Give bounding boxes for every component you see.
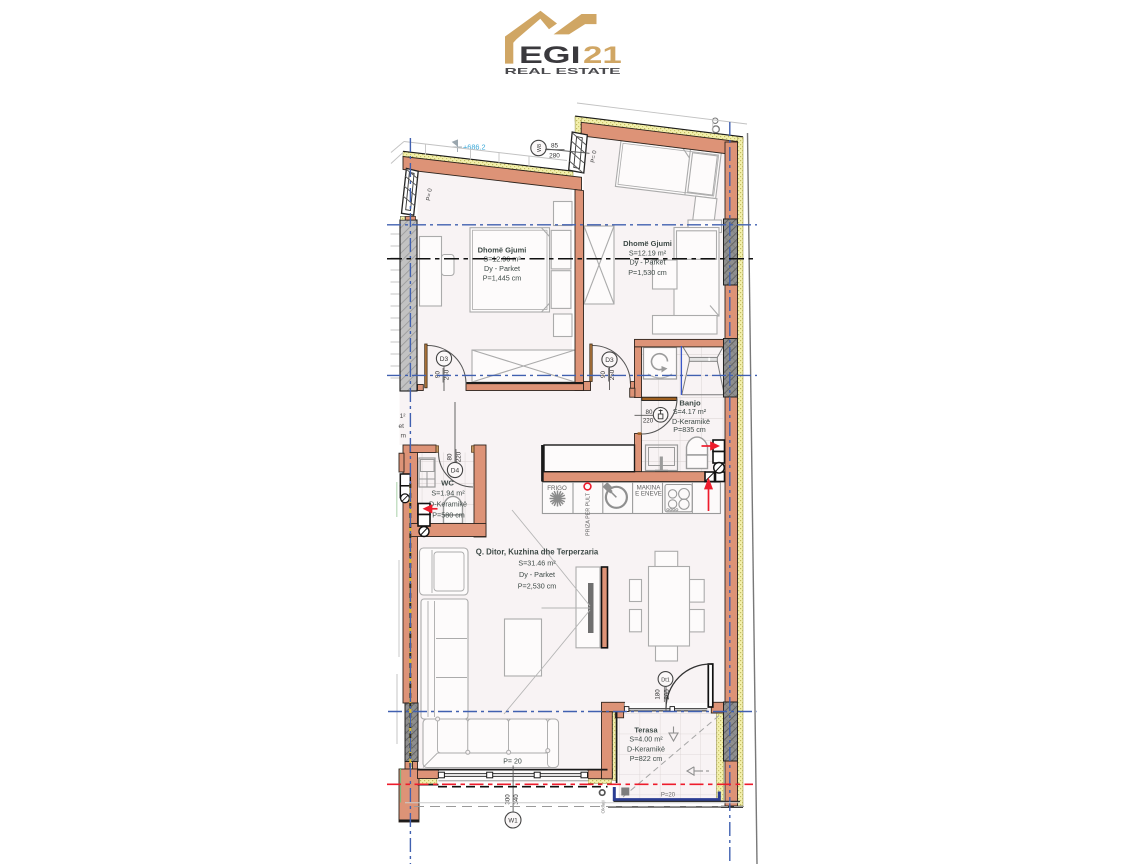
- svg-text:80: 80: [447, 453, 454, 460]
- svg-text:P=1,530 cm: P=1,530 cm: [628, 268, 667, 277]
- svg-text:m: m: [401, 433, 407, 440]
- svg-text:S=31.46 m²: S=31.46 m²: [518, 559, 556, 568]
- svg-text:P=835 cm: P=835 cm: [673, 425, 706, 434]
- svg-text:Dhomë Gjumi: Dhomë Gjumi: [478, 246, 527, 255]
- svg-text:D-Keramikë: D-Keramikë: [627, 745, 665, 754]
- svg-text:E ENEVE: E ENEVE: [635, 491, 662, 498]
- svg-text:D3: D3: [440, 356, 449, 363]
- svg-text:+686.2: +686.2: [463, 143, 486, 152]
- svg-text:P=822 cm: P=822 cm: [630, 754, 663, 763]
- svg-text:S=4.17 m²: S=4.17 m²: [673, 407, 707, 416]
- svg-text:D-Keramikë: D-Keramikë: [429, 500, 467, 509]
- svg-text:P=20: P=20: [661, 793, 676, 799]
- svg-text:D4: D4: [451, 468, 460, 475]
- svg-text:WC: WC: [441, 479, 454, 488]
- svg-text:EGI: EGI: [519, 42, 581, 69]
- svg-text:PRIZA PER PULT: PRIZA PER PULT: [586, 492, 592, 536]
- svg-text:W1: W1: [508, 818, 518, 825]
- svg-text:Dy - Parket: Dy - Parket: [519, 570, 555, 579]
- svg-text:S=4.00 m²: S=4.00 m²: [629, 735, 663, 744]
- svg-text:180: 180: [655, 689, 662, 700]
- svg-text:FRIGO: FRIGO: [547, 485, 567, 492]
- svg-text:90: 90: [600, 371, 607, 378]
- svg-text:1²: 1²: [400, 413, 407, 420]
- svg-text:220: 220: [643, 418, 654, 425]
- svg-text:D3: D3: [605, 357, 614, 364]
- svg-text:Dhomë Gjumi: Dhomë Gjumi: [623, 239, 672, 248]
- svg-text:W8: W8: [537, 144, 543, 152]
- svg-text:REAL ESTATE: REAL ESTATE: [505, 67, 622, 76]
- svg-text:21: 21: [583, 42, 622, 69]
- svg-text:Terasa: Terasa: [634, 726, 658, 735]
- svg-text:S=1.94 m²: S=1.94 m²: [431, 489, 465, 498]
- svg-text:P= 20: P= 20: [503, 759, 522, 766]
- svg-text:260: 260: [664, 689, 671, 700]
- svg-text:P=2,530 cm: P=2,530 cm: [518, 582, 557, 591]
- svg-text:S=12.19 m²: S=12.19 m²: [629, 249, 667, 258]
- svg-text:P=1,445 cm: P=1,445 cm: [483, 274, 522, 283]
- svg-text:220: 220: [456, 451, 463, 462]
- svg-text:Q. Ditor, Kuzhina dhe Terperza: Q. Ditor, Kuzhina dhe Terperzaria: [476, 548, 599, 557]
- svg-text:P=580 cm: P=580 cm: [432, 511, 465, 520]
- svg-text:90: 90: [435, 371, 442, 378]
- svg-text:Dt1: Dt1: [661, 677, 669, 683]
- svg-text:Dy - Parket: Dy - Parket: [484, 264, 520, 273]
- svg-text:et: et: [399, 423, 405, 430]
- svg-text:85: 85: [551, 143, 559, 150]
